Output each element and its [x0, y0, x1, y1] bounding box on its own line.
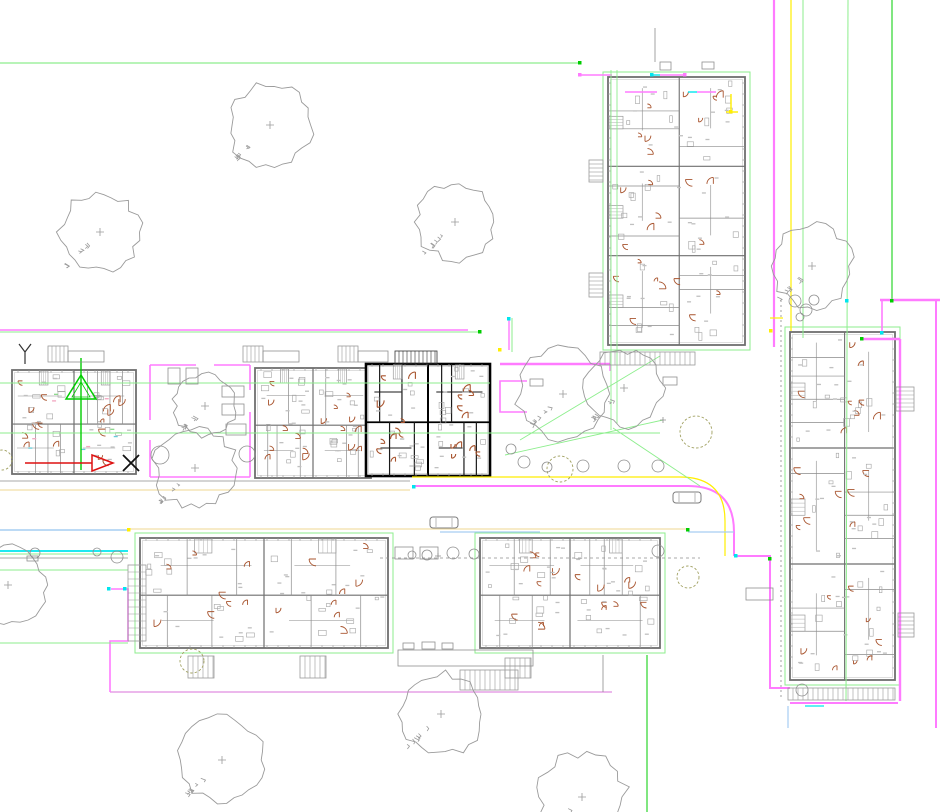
room-label-tick: [798, 364, 802, 365]
hatch-grid: [896, 387, 914, 411]
tree-scruff: [434, 240, 437, 245]
room-label-tick: [353, 426, 357, 427]
tree-center-cross: [191, 464, 199, 472]
room-label-tick: [556, 547, 560, 548]
room-label-tick: [640, 171, 644, 172]
room-label-tick: [834, 384, 838, 385]
room-label-tick: [514, 569, 518, 570]
room-label-tick: [164, 611, 168, 612]
tree-scruff: [181, 427, 184, 431]
room-label-tick: [831, 576, 835, 577]
tree-center-cross: [559, 390, 567, 398]
room-label-tick: [403, 389, 407, 390]
room-label-tick: [547, 566, 551, 567]
room-label-tick: [877, 651, 881, 652]
shrub: [506, 444, 516, 454]
shrub: [30, 548, 40, 558]
room-label-tick: [696, 296, 700, 297]
room-label-tick: [477, 457, 481, 458]
room-label-tick: [462, 457, 466, 458]
room-label-tick: [231, 549, 235, 550]
room-label-tick: [679, 135, 683, 136]
shrub: [469, 549, 479, 559]
building-row-highlight: [366, 364, 490, 476]
room-label-tick: [31, 423, 35, 424]
room-label-tick: [643, 560, 647, 561]
joint-marker: [769, 329, 773, 333]
room-label-tick: [820, 498, 824, 499]
joint-marker: [650, 73, 654, 77]
tree-scruff: [438, 237, 441, 242]
joint-marker: [507, 317, 511, 321]
tree-scruff: [201, 778, 206, 782]
room-label-tick: [627, 298, 631, 299]
room-label-tick: [645, 634, 649, 635]
planter-rect: [186, 368, 198, 384]
room-label-tick: [496, 635, 500, 636]
room-label-tick: [611, 581, 615, 582]
tree: [583, 350, 666, 429]
room-label-tick: [576, 559, 580, 560]
room-label-tick: [175, 626, 179, 627]
joint-marker: [107, 587, 111, 591]
tree-scruff: [195, 783, 197, 786]
tree-scruff: [544, 410, 547, 413]
tree: [178, 714, 265, 804]
hatch-frame: [460, 670, 518, 690]
room-label-tick: [633, 110, 637, 111]
tree: [398, 670, 481, 753]
room-label-tick: [880, 571, 884, 572]
parked-car: [673, 492, 701, 503]
room-label-tick: [289, 378, 293, 379]
layer-buildings: [12, 77, 895, 680]
room-label-tick: [698, 237, 702, 238]
tree-scruff: [185, 793, 190, 797]
shrub: [422, 550, 432, 560]
tree-center-cross: [201, 402, 209, 410]
room-label-tick: [440, 456, 444, 457]
tree-canopy: [0, 544, 48, 625]
shrub: [239, 446, 255, 462]
room-label-tick: [641, 298, 645, 299]
shrub: [447, 547, 459, 559]
joint-marker: [845, 299, 849, 303]
room-label-tick: [852, 528, 856, 529]
room-label-tick: [817, 384, 821, 385]
tree-center-cross: [437, 710, 445, 718]
tree-canopy: [152, 427, 237, 509]
room-label-tick: [22, 417, 26, 418]
shrub: [800, 304, 812, 316]
room-label-tick: [842, 597, 846, 598]
room-label-tick: [704, 320, 708, 321]
room-label-tick: [335, 450, 339, 451]
building-outline: [790, 332, 895, 680]
room-label-tick: [295, 448, 299, 449]
room-label-tick: [677, 187, 681, 188]
room-label-tick: [354, 405, 358, 406]
room-label-tick: [286, 410, 290, 411]
room-label-tick: [248, 627, 252, 628]
bush: [680, 416, 712, 448]
planter-rect: [68, 351, 104, 362]
room-label-tick: [410, 445, 414, 446]
tree-center-cross: [4, 581, 12, 589]
shrub: [809, 295, 819, 305]
tree-scruff: [548, 407, 553, 411]
tree: [172, 372, 236, 438]
room-label-tick: [345, 585, 349, 586]
building-south-1: [140, 538, 388, 648]
room-label-tick: [865, 644, 869, 645]
room-label-tick: [674, 126, 678, 127]
room-label-tick: [691, 223, 695, 224]
room-label-tick: [718, 89, 722, 90]
car-body: [673, 492, 701, 503]
room-label-tick: [400, 438, 404, 439]
bush: [0, 450, 12, 470]
room-label-tick: [187, 558, 191, 559]
room-label-tick: [649, 144, 653, 145]
room-label-tick: [337, 399, 341, 400]
planter-rect: [422, 642, 435, 649]
room-label-tick: [299, 400, 303, 401]
room-label-tick: [380, 596, 384, 597]
planter-rect: [530, 379, 543, 386]
tree-scruff: [191, 418, 195, 421]
hatch-grid: [48, 346, 68, 362]
tree-scruff: [85, 244, 87, 248]
car-body: [430, 517, 458, 528]
room-label-tick: [725, 216, 729, 217]
room-label-tick: [353, 550, 357, 551]
room-label-tick: [356, 607, 360, 608]
tree-center-cross: [218, 756, 226, 764]
room-label-tick: [798, 662, 802, 663]
joint-marker: [123, 587, 127, 591]
room-label-tick: [627, 296, 631, 297]
room-label-tick: [33, 424, 37, 425]
room-label-tick: [603, 568, 607, 569]
room-label-tick: [467, 426, 471, 427]
room-label-tick: [697, 249, 701, 250]
y-survey-marker: [19, 344, 31, 364]
tree-canopy: [537, 751, 630, 812]
tree: [0, 544, 48, 625]
planter-rect: [660, 62, 671, 70]
hatch-frame: [338, 346, 358, 362]
room-label-tick: [436, 436, 440, 437]
planter-rect: [222, 404, 244, 415]
room-label-tick: [239, 632, 243, 633]
joint-marker: [578, 73, 582, 77]
room-label-tick: [325, 421, 329, 422]
room-label-tick: [711, 112, 715, 113]
room-label-tick: [128, 442, 132, 443]
room-label-tick: [238, 583, 242, 584]
tree-canopy: [398, 670, 481, 753]
room-label-tick: [702, 192, 706, 193]
room-label-tick: [486, 571, 490, 572]
room-label-tick: [342, 443, 346, 444]
planter-rect: [27, 556, 38, 561]
room-label-tick: [443, 392, 447, 393]
room-label-tick: [826, 429, 830, 430]
room-label-tick: [155, 555, 159, 556]
tree: [152, 427, 237, 509]
room-label-tick: [832, 486, 836, 487]
shrub: [93, 548, 101, 556]
layer-symbols: [19, 61, 894, 591]
tree-center-cross: [808, 262, 816, 270]
planter-rect: [403, 643, 414, 649]
tree-center-cross: [96, 228, 104, 236]
joint-marker: [127, 528, 131, 532]
room-label-tick: [97, 445, 101, 446]
tree: [771, 222, 854, 311]
room-label-tick: [421, 446, 425, 447]
joint-marker: [890, 299, 894, 303]
room-label-tick: [388, 414, 392, 415]
room-label-tick: [261, 398, 265, 399]
joint-marker: [686, 528, 690, 532]
shrub: [577, 460, 589, 472]
bush: [677, 566, 699, 588]
room-label-tick: [616, 590, 620, 591]
joint-marker: [683, 73, 687, 77]
room-label-tick: [850, 521, 854, 522]
cad-viewport: [0, 0, 940, 812]
room-label-tick: [668, 222, 672, 223]
room-label-tick: [847, 381, 851, 382]
site-line: [505, 420, 663, 455]
tree-scruff: [418, 733, 421, 738]
shrub: [618, 460, 630, 472]
building-north-east: [608, 77, 745, 345]
room-label-tick: [705, 139, 709, 140]
joint-marker: [880, 331, 884, 335]
room-label-tick: [343, 383, 347, 384]
room-label-tick: [503, 634, 507, 635]
joint-marker: [734, 554, 738, 558]
joint-marker: [860, 337, 864, 341]
room-label-tick: [836, 596, 840, 597]
room-label-tick: [348, 434, 352, 435]
room-label-tick: [561, 547, 565, 548]
room-label-tick: [708, 274, 712, 275]
room-label-tick: [127, 430, 131, 431]
room-label-tick: [838, 339, 842, 340]
room-label-tick: [114, 436, 118, 437]
room-label-tick: [376, 410, 380, 411]
room-label-tick: [435, 467, 439, 468]
room-label-tick: [469, 412, 473, 413]
room-label-tick: [833, 398, 837, 399]
room-label-tick: [670, 334, 674, 335]
tree-scruff: [427, 726, 429, 731]
room-label-tick: [411, 407, 415, 408]
planter-rect: [663, 377, 677, 385]
room-label-tick: [219, 637, 223, 638]
room-label-tick: [551, 572, 555, 573]
room-label-tick: [715, 177, 719, 178]
room-label-tick: [303, 446, 307, 447]
hatch-grid: [589, 273, 603, 297]
room-label-tick: [305, 391, 309, 392]
joint-marker: [578, 61, 582, 65]
room-label-tick: [623, 634, 627, 635]
survey-cross: [660, 417, 666, 423]
tree-scruff: [81, 249, 84, 252]
room-label-tick: [552, 577, 556, 578]
joint-marker: [768, 557, 772, 561]
room-label-tick: [843, 634, 847, 635]
site-line: [520, 356, 660, 440]
room-label-tick: [688, 222, 692, 223]
room-label-tick: [555, 612, 559, 613]
room-label-tick: [277, 582, 281, 583]
tree: [56, 192, 142, 272]
hatch-frame: [300, 656, 326, 678]
tree: [515, 345, 610, 442]
hatch-grid: [589, 160, 603, 182]
tree-center-cross: [620, 384, 628, 392]
room-label-tick: [348, 379, 352, 380]
room-label-tick: [280, 593, 284, 594]
room-label-tick: [86, 446, 90, 447]
tree-scruff: [78, 251, 81, 254]
room-label-tick: [519, 583, 523, 584]
tree-scruff: [777, 297, 782, 301]
room-label-tick: [284, 574, 288, 575]
room-label-tick: [556, 602, 560, 603]
room-label-tick: [105, 398, 109, 399]
room-label-tick: [863, 474, 867, 475]
room-label-tick: [398, 455, 402, 456]
room-label-tick: [53, 378, 57, 379]
planter-rect: [395, 547, 413, 559]
room-label-tick: [643, 86, 647, 87]
room-label-tick: [716, 296, 720, 297]
room-label-tick: [409, 465, 413, 466]
tree: [414, 184, 493, 263]
tree-scruff: [177, 484, 180, 487]
room-label-tick: [449, 424, 453, 425]
room-label-tick: [415, 443, 419, 444]
room-label-tick: [89, 429, 93, 430]
room-label-tick: [54, 394, 58, 395]
room-label-tick: [194, 557, 198, 558]
room-label-tick: [28, 447, 32, 448]
tree: [537, 751, 630, 812]
hatch-grid: [243, 346, 263, 362]
planter-rect: [358, 351, 388, 362]
planter-rect: [168, 368, 180, 384]
room-label-tick: [815, 498, 819, 499]
room-label-tick: [606, 628, 610, 629]
room-label-tick: [238, 587, 242, 588]
hatch-frame: [243, 346, 263, 362]
hatch-grid: [300, 656, 326, 678]
room-label-tick: [301, 592, 305, 593]
room-label-tick: [853, 411, 857, 412]
building-outline: [608, 77, 745, 345]
tree-scruff: [568, 809, 572, 812]
room-label-tick: [725, 110, 729, 111]
room-label-tick: [881, 414, 885, 415]
room-label-tick: [24, 395, 28, 396]
room-label-tick: [337, 380, 341, 381]
joint-marker: [498, 348, 502, 352]
joint-marker: [478, 330, 482, 334]
room-label-tick: [479, 376, 483, 377]
room-label-tick: [301, 404, 305, 405]
room-label-tick: [829, 367, 833, 368]
room-label-tick: [811, 653, 815, 654]
room-label-tick: [203, 554, 207, 555]
shrub: [518, 456, 530, 468]
site-line: [734, 556, 790, 688]
room-label-tick: [816, 550, 820, 551]
room-label-tick: [81, 449, 85, 450]
room-label-tick: [37, 421, 41, 422]
room-label-tick: [859, 364, 863, 365]
planter-rect: [263, 351, 299, 362]
tree-scruff: [407, 744, 409, 749]
room-label-tick: [325, 377, 329, 378]
tree-scruff: [422, 251, 426, 254]
room-label-tick: [587, 609, 591, 610]
room-label-tick: [111, 446, 115, 447]
hatch-grid: [395, 351, 437, 364]
hatch-grid: [460, 670, 518, 690]
hatch-frame: [188, 656, 214, 678]
tree-scruff: [538, 416, 541, 421]
bush: [547, 456, 573, 482]
hatch-frame: [589, 160, 603, 182]
room-label-tick: [451, 376, 455, 377]
site-line: [110, 589, 128, 692]
room-label-tick: [332, 584, 336, 585]
hatch-grid: [338, 346, 358, 362]
hatch-frame: [788, 688, 895, 700]
room-label-tick: [867, 517, 871, 518]
parked-car: [430, 517, 458, 528]
shrub: [652, 460, 664, 472]
tree: [231, 83, 314, 168]
tree-center-cross: [578, 793, 586, 801]
joint-marker: [412, 485, 416, 489]
room-label-tick: [852, 548, 856, 549]
room-label-tick: [110, 429, 114, 430]
planter-rect: [442, 643, 453, 649]
room-label-tick: [726, 121, 730, 122]
room-label-tick: [872, 523, 876, 524]
tree-center-cross: [451, 218, 459, 226]
room-label-tick: [52, 400, 56, 401]
tree-scruff: [440, 235, 442, 238]
room-label-tick: [285, 576, 289, 577]
room-label-tick: [32, 438, 36, 439]
hatch-grid: [188, 656, 214, 678]
room-label-tick: [471, 370, 475, 371]
room-label-tick: [378, 449, 382, 450]
planter-rect: [746, 588, 773, 600]
room-label-tick: [279, 442, 283, 443]
room-label-tick: [806, 430, 810, 431]
room-label-tick: [883, 652, 887, 653]
